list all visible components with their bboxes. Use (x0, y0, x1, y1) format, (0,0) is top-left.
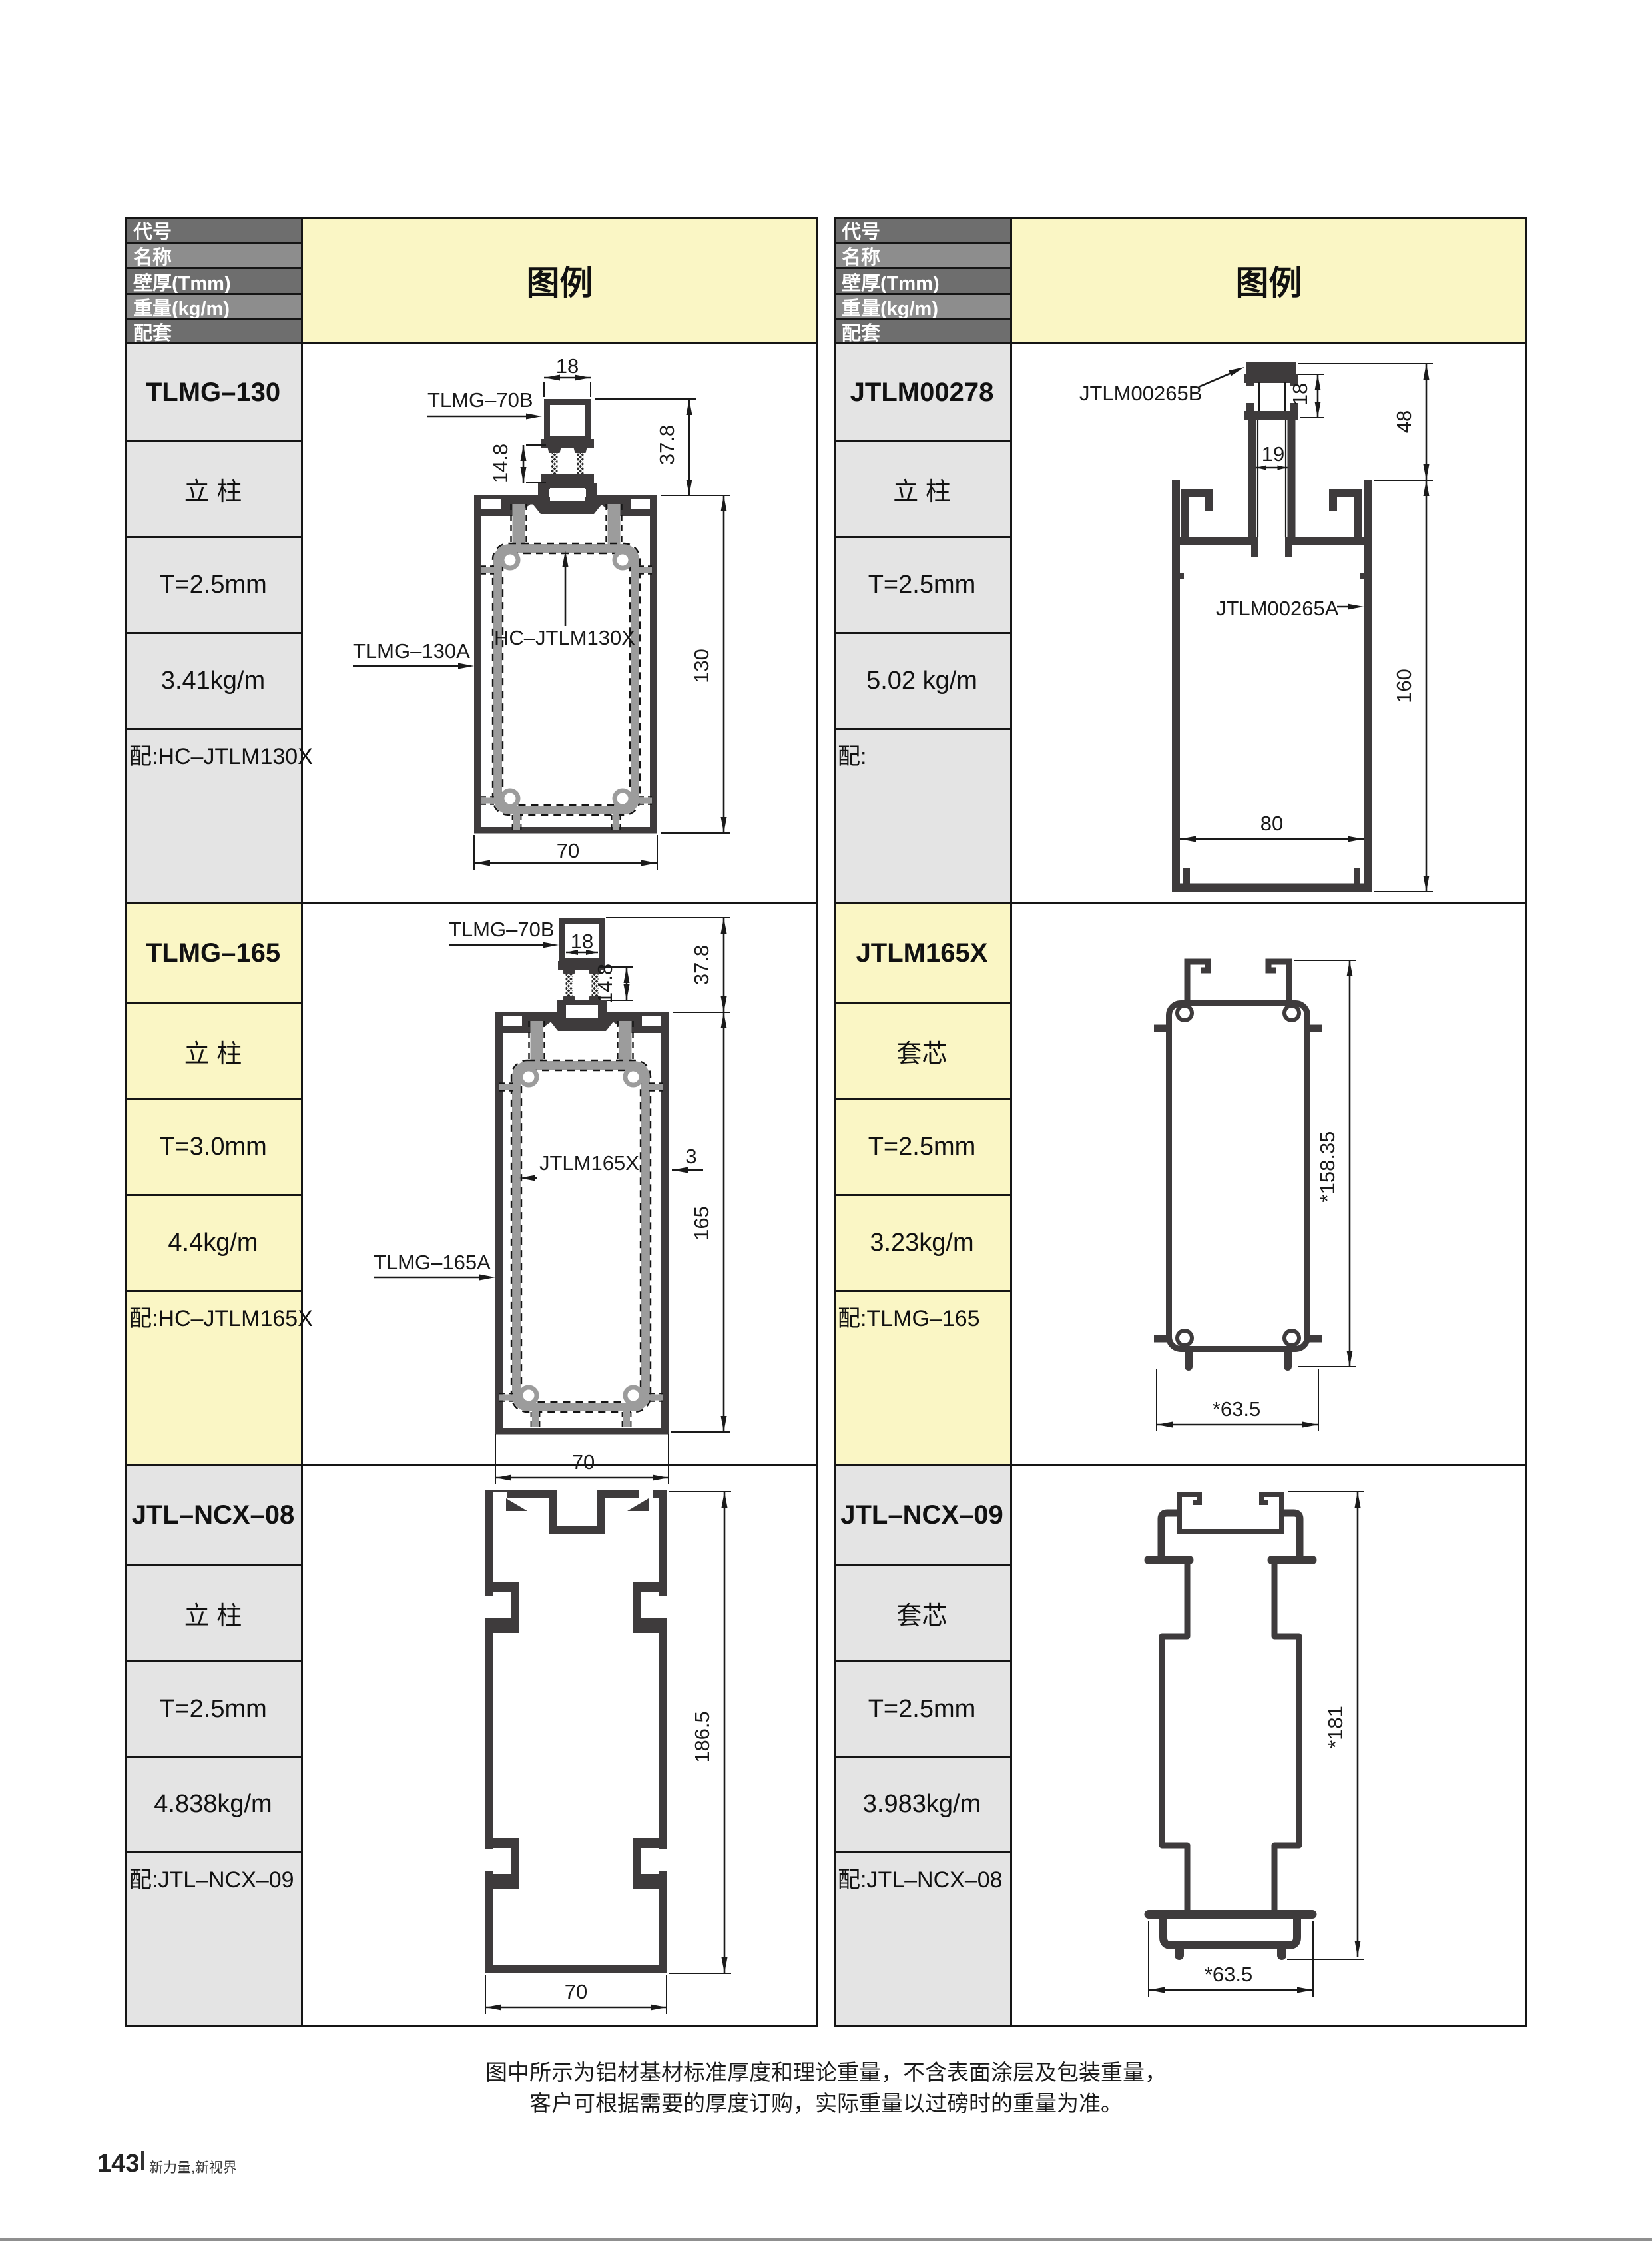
svg-text:130: 130 (690, 649, 713, 683)
svg-text:80: 80 (1260, 812, 1283, 835)
svg-text:*158.35: *158.35 (1316, 1131, 1339, 1203)
svg-text:18: 18 (556, 354, 579, 378)
svg-text:37.8: 37.8 (655, 425, 679, 465)
svg-text:48: 48 (1392, 410, 1416, 433)
svg-text:*181: *181 (1324, 1706, 1347, 1748)
svg-text:14.8: 14.8 (593, 964, 617, 1004)
svg-text:JTLM165X: JTLM165X (539, 1151, 639, 1175)
svg-text:TLMG–165A: TLMG–165A (374, 1251, 491, 1274)
svg-text:165: 165 (690, 1206, 713, 1241)
svg-text:70: 70 (565, 1980, 587, 2003)
svg-text:*63.5: *63.5 (1213, 1397, 1260, 1421)
svg-text:TLMG–130A: TLMG–130A (353, 639, 470, 663)
svg-text:160: 160 (1392, 669, 1416, 703)
svg-text:TLMG–70B: TLMG–70B (449, 918, 555, 941)
svg-text:18: 18 (1288, 383, 1312, 406)
svg-text:18: 18 (571, 930, 593, 953)
svg-text:3: 3 (685, 1145, 696, 1168)
svg-text:186.5: 186.5 (690, 1711, 714, 1763)
svg-text:70: 70 (557, 839, 579, 862)
svg-text:JTLM00265A: JTLM00265A (1216, 597, 1339, 620)
svg-text:TLMG–70B: TLMG–70B (427, 388, 533, 412)
svg-text:*63.5: *63.5 (1205, 1963, 1252, 1986)
svg-text:19: 19 (1262, 442, 1284, 466)
svg-text:14.8: 14.8 (489, 444, 512, 483)
svg-text:HC–JTLM130X: HC–JTLM130X (494, 626, 635, 649)
svg-text:JTLM00265B: JTLM00265B (1079, 382, 1202, 405)
svg-text:37.8: 37.8 (690, 945, 713, 985)
